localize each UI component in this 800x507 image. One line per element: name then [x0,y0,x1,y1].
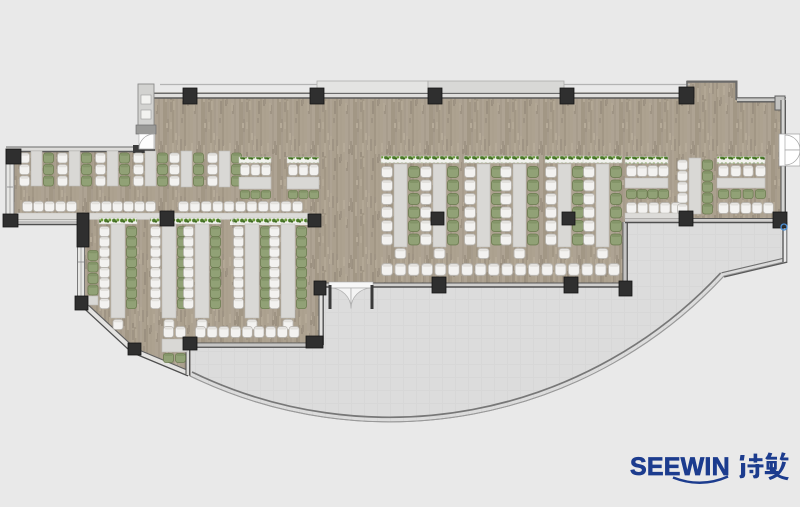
svg-text:SEEWIN: SEEWIN [630,453,730,481]
